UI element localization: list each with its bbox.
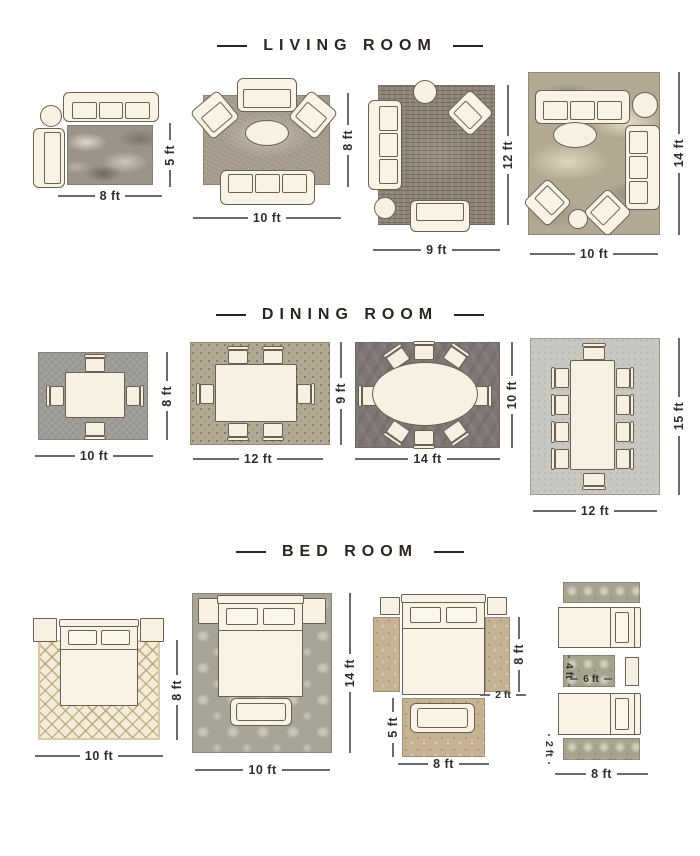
dining-chair [616,449,630,469]
section-header-living-room: LIVING ROOM [0,35,700,57]
dim-line [516,694,526,696]
dim-line [392,743,394,757]
dim-line [548,734,550,736]
sheet-line [61,649,137,650]
dim-label: 5 ft [163,145,177,166]
dining-table [570,360,615,470]
dining-chair [555,368,569,388]
dim-line [392,698,394,712]
chair-back [630,394,634,416]
dining-chair [228,350,248,364]
dining-chair [414,345,434,360]
bed [402,595,485,695]
heading-dash [236,551,266,553]
headboard [401,594,487,603]
width-dimension: 12 ft [533,504,657,518]
pillow [226,608,258,625]
section-header-dining-room: DINING ROOM [0,304,700,326]
foot-rug-height-dimension: 5 ft [386,698,400,757]
sofa [535,90,630,124]
chair-back [488,385,492,407]
section-header-bed-room: BED ROOM [0,541,700,563]
rug-size-guide: LIVING ROOM 8 ft 5 ft 8 ft 10 ft 12 ft 9… [0,0,700,856]
dim-label: 10 ft [80,449,108,463]
runner-rug-left [373,617,400,692]
section-title: DINING ROOM [262,306,438,324]
runner-rug-top [563,582,640,603]
height-dimension: 8 ft [160,352,174,440]
sofa [625,125,660,210]
dim-line [349,692,351,753]
chair-back [227,437,249,441]
nightstand [487,597,507,615]
dim-label: 12 ft [244,452,272,466]
dim-label: 8 ft [591,767,612,781]
dim-line [347,155,349,187]
dim-label: 8 ft [341,130,355,151]
living-room-layout-4: 14 ft 10 ft [520,65,700,263]
bench-cushion [417,708,469,727]
dim-line [459,763,489,765]
dim-line [533,510,576,512]
dim-line [678,338,680,397]
pillow [615,612,629,642]
runner-rug-bottom [563,738,640,760]
heading-dash [434,551,464,553]
dim-line [518,617,520,639]
chair-back [84,354,106,358]
dim-line [530,253,575,255]
dim-line [355,458,408,460]
heading-dash [453,45,483,47]
width-dimension: 8 ft [398,757,489,771]
cushions [379,106,398,183]
dim-line [678,436,680,495]
dining-chair [616,422,630,442]
pillow [615,698,629,729]
dim-line [340,409,342,445]
dim-line [373,249,421,251]
dim-label: 10 ft [253,211,281,225]
dim-line [166,352,168,381]
dining-chair [555,395,569,415]
dim-label: 2 ft [495,689,511,701]
dim-line [678,72,680,134]
dim-line [548,762,550,764]
cushions [72,102,151,119]
dining-room-layout-1: 8 ft 10 ft [25,348,185,465]
living-room-layout-1: 8 ft 5 ft [28,85,178,207]
height-dimension: 9 ft [334,342,348,445]
chair-back [358,385,362,407]
nightstand [33,618,57,642]
bed-room-layout-1: 10 ft 8 ft [20,588,195,774]
dining-chair [555,449,569,469]
twin-bed [558,693,640,735]
chair-back [630,448,634,470]
dim-line [507,174,509,225]
chair-back [140,385,144,407]
dim-line [277,458,323,460]
dim-label: 12 ft [581,504,609,518]
chair-back [551,448,555,470]
dim-label: 15 ft [672,402,686,430]
cushion [590,195,621,226]
dining-table [215,364,297,422]
dining-chair [297,384,311,404]
dining-room-layout-2: 9 ft 12 ft [185,338,350,470]
cushions [543,101,621,120]
dim-line [35,455,75,457]
dining-chair [85,422,105,436]
dim-label: 10 ft [248,763,276,777]
chair-back [413,445,435,449]
dining-chair [555,422,569,442]
accent-rug-width-dimension: 6 ft [570,673,612,685]
bed-room-layout-3: 8 ft 2 ft 5 ft 8 ft [360,585,530,800]
dim-label: 8 ft [170,680,184,701]
height-dimension: 12 ft [501,85,515,225]
width-dimension: 8 ft [58,189,162,203]
dim-label: 10 ft [85,749,113,763]
dim-line [480,694,490,696]
dim-line [511,342,513,376]
height-dimension: 15 ft [672,338,686,495]
section-title: BED ROOM [282,543,418,561]
dim-line [555,773,586,775]
dining-chair [50,386,64,406]
dining-chair [616,368,630,388]
dining-chair [126,386,140,406]
width-dimension: 10 ft [35,449,153,463]
dim-line [282,769,330,771]
dim-label: 10 ft [505,381,519,409]
dim-line [176,705,178,740]
height-dimension: 10 ft [505,342,519,448]
sheet-line [610,608,611,647]
dim-label: 8 ft [160,386,174,407]
dining-table [65,372,125,418]
dining-chair [85,358,105,372]
bed [60,620,138,706]
dim-line [193,217,248,219]
height-dimension: 14 ft [672,72,686,235]
dim-line [678,173,680,235]
cushions [228,174,306,194]
width-dimension: 10 ft [195,763,330,777]
dim-label: 9 ft [426,243,447,257]
chair-back [46,385,50,407]
chair-back [413,341,435,345]
sheet-line [610,694,611,734]
bed [218,596,303,697]
height-dimension: 14 ft [343,593,357,753]
dim-line [113,455,153,457]
cushions [629,131,648,204]
cushions [44,132,62,183]
bed-room-layout-4: 4 ft 6 ft 2 ft 8 ft [530,570,700,788]
dim-line [398,763,428,765]
armchair-chaise [33,128,65,188]
dining-room-layout-4: 15 ft 12 ft [525,333,700,523]
dim-label: 14 ft [413,452,441,466]
dim-line [193,458,239,460]
dim-line [511,414,513,448]
dim-label: 5 ft [386,717,400,738]
living-room-layout-2: 8 ft 10 ft [185,75,355,225]
dim-line [507,85,509,136]
oval-dining-table [372,362,478,426]
chair-back [551,421,555,443]
dining-chair [583,347,605,360]
dim-line [617,773,648,775]
pillow [410,607,441,624]
heading-dash [454,314,484,316]
dim-label: 6 ft [583,673,599,685]
runner-rug-right [485,617,510,692]
dim-line [125,195,162,197]
dim-label: 8 ft [433,757,454,771]
dim-line [166,411,168,440]
dim-label: 9 ft [334,383,348,404]
nightstand [140,618,164,642]
dim-line [195,769,243,771]
pillow [101,630,130,644]
dim-label: 8 ft [100,189,121,203]
dining-chair [414,430,434,445]
dining-chair [263,350,283,364]
dim-line [452,249,500,251]
dim-label: 10 ft [580,247,608,261]
chair-back [630,421,634,443]
chair-back [551,394,555,416]
coffee-table [553,122,597,148]
height-dimension: 8 ft [341,93,355,187]
twin-bed [558,607,640,648]
chair-back [311,383,315,405]
width-dimension: 10 ft [193,211,341,225]
runner-width-dimension: 2 ft [543,734,555,764]
dim-label: 2 ft [543,741,555,757]
cushions [243,89,292,108]
dim-line [35,755,80,757]
runner-width-dimension: 2 ft [480,689,526,701]
chair-back [551,367,555,389]
height-dimension: 5 ft [163,123,177,187]
sofa [63,92,159,122]
coffee-table [245,120,289,146]
width-dimension: 14 ft [355,452,500,466]
pillow [263,608,295,625]
width-dimension: 12 ft [193,452,323,466]
chair-back [582,486,607,490]
loveseat [410,200,470,232]
bench-cushion [236,703,285,721]
height-dimension: 8 ft [170,640,184,740]
pillow [446,607,477,624]
sofa [220,170,315,205]
heading-dash [217,45,247,47]
dining-chair [263,423,283,437]
dim-line [570,678,578,680]
dim-line [58,195,95,197]
dim-line [614,510,657,512]
dim-line [340,342,342,378]
runner-length-dimension: 8 ft [512,617,526,692]
dim-line [347,93,349,125]
side-table [568,209,588,229]
dim-label: 12 ft [501,141,515,169]
dining-chair [616,395,630,415]
chair-back [582,343,607,347]
headboard [634,607,641,648]
dim-line [169,170,171,187]
nightstand [625,657,639,686]
dining-room-layout-3: 10 ft 14 ft [350,338,520,470]
loveseat [237,78,297,112]
rug-8x5 [67,125,153,185]
dim-line [349,593,351,654]
side-table [40,105,62,127]
heading-dash [216,314,246,316]
dim-label: 14 ft [343,659,357,687]
side-table [632,92,658,118]
dim-line [118,755,163,757]
bench [410,703,475,733]
chair-back [196,383,200,405]
headboard [217,595,305,604]
bed-room-layout-2: 10 ft 14 ft [185,585,360,800]
chair-back [262,437,284,441]
cushions [416,203,465,221]
side-table [413,80,437,104]
sheet-line [403,628,484,629]
dining-chair [583,473,605,486]
section-title: LIVING ROOM [263,37,437,55]
sofa [368,100,402,190]
dim-label: 14 ft [672,139,686,167]
width-dimension: 10 ft [35,749,163,763]
headboard [59,619,140,627]
dim-label: 8 ft [512,644,526,665]
sheet-line [219,630,302,631]
dim-line [613,253,658,255]
dim-line [286,217,341,219]
chair-back [227,346,249,350]
dining-chair [200,384,214,404]
width-dimension: 10 ft [530,247,658,261]
dim-line [176,640,178,675]
chair-back [262,346,284,350]
nightstand [380,597,400,615]
width-dimension: 8 ft [555,767,648,781]
headboard [634,693,641,735]
chair-back [630,367,634,389]
dim-line [568,655,570,658]
bench [230,698,292,726]
living-room-layout-3: 12 ft 9 ft [365,70,520,258]
width-dimension: 9 ft [373,243,500,257]
chair-back [84,436,106,440]
dim-line [447,458,500,460]
side-table [374,197,396,219]
dim-line [169,123,171,140]
dining-chair [228,423,248,437]
pillow [68,630,97,644]
dim-line [604,678,612,680]
